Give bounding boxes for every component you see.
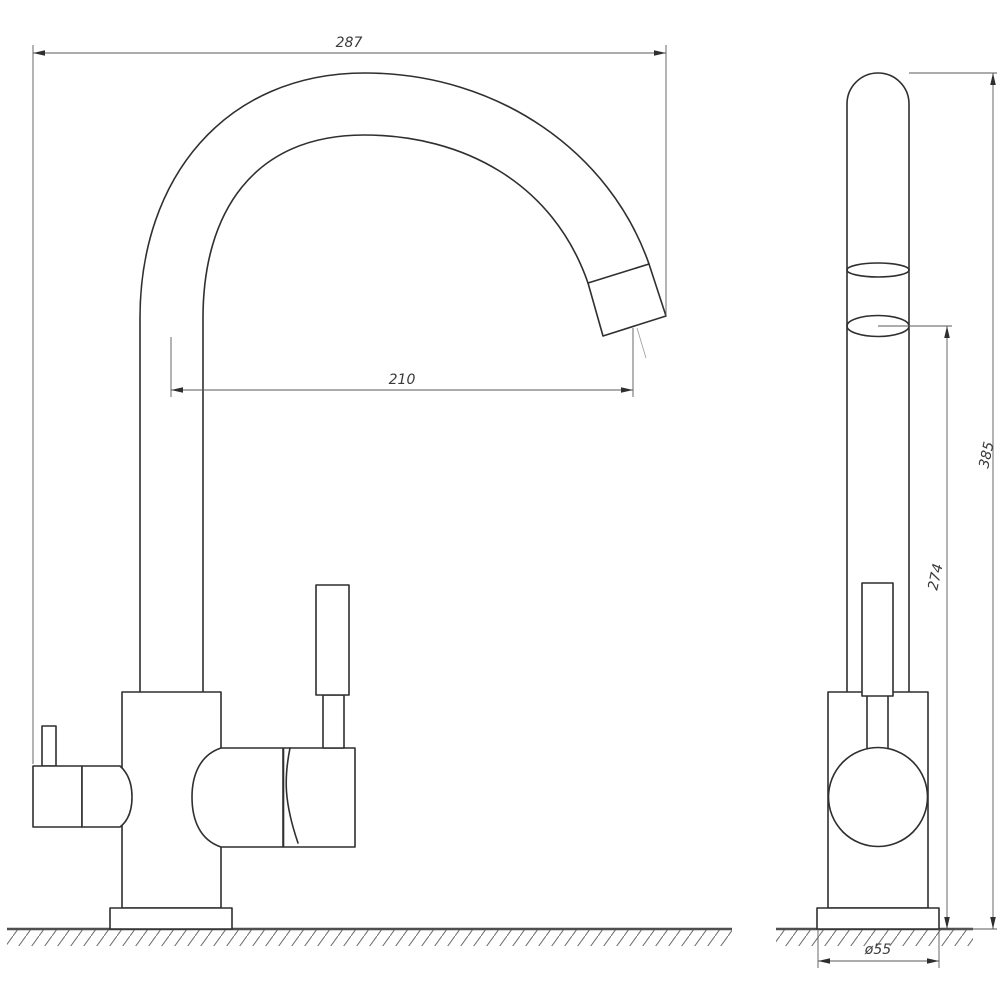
arrow-287-left (33, 50, 45, 56)
mixer-cartridge-circle (829, 748, 928, 847)
arrow-274-bottom (944, 917, 950, 929)
left-handle-knob (42, 726, 56, 766)
drawing-sheet: 287 210 385 274 ø55 (0, 0, 1000, 1000)
side-view (776, 73, 997, 946)
arrow-274-top (944, 326, 950, 338)
arrow-210-left (171, 387, 183, 393)
arrow-287-right (654, 50, 666, 56)
arrow-d55-right (927, 958, 939, 964)
arrow-d55-left (818, 958, 830, 964)
front-view (7, 73, 732, 946)
mixer-cartridge-dome (192, 748, 283, 847)
mixer-lever-grip-side (862, 583, 893, 696)
base-plate-side (817, 908, 939, 929)
mixer-lever-grip (316, 585, 349, 695)
dim-d55-label: ø55 (864, 942, 891, 958)
dim-287-label: 287 (336, 35, 363, 51)
aerator-seam-line (588, 264, 649, 283)
spout-swivel-seam (847, 263, 909, 277)
left-handle-body (33, 766, 82, 827)
arrow-210-right (621, 387, 633, 393)
spout-drip-line (637, 328, 646, 358)
dim-274-label: 274 (925, 562, 946, 591)
left-handle-collar (82, 766, 132, 827)
faucet-technical-drawing: 287 210 385 274 ø55 (0, 0, 1000, 1000)
base-plate-front (110, 908, 232, 929)
arrow-385-top (990, 73, 996, 85)
arrow-385-bottom (990, 917, 996, 929)
dim-385-label: 385 (976, 440, 997, 470)
dim-210-label: 210 (389, 372, 416, 388)
ground-hatch-front (7, 929, 732, 946)
mixer-lever-stem (323, 695, 344, 748)
